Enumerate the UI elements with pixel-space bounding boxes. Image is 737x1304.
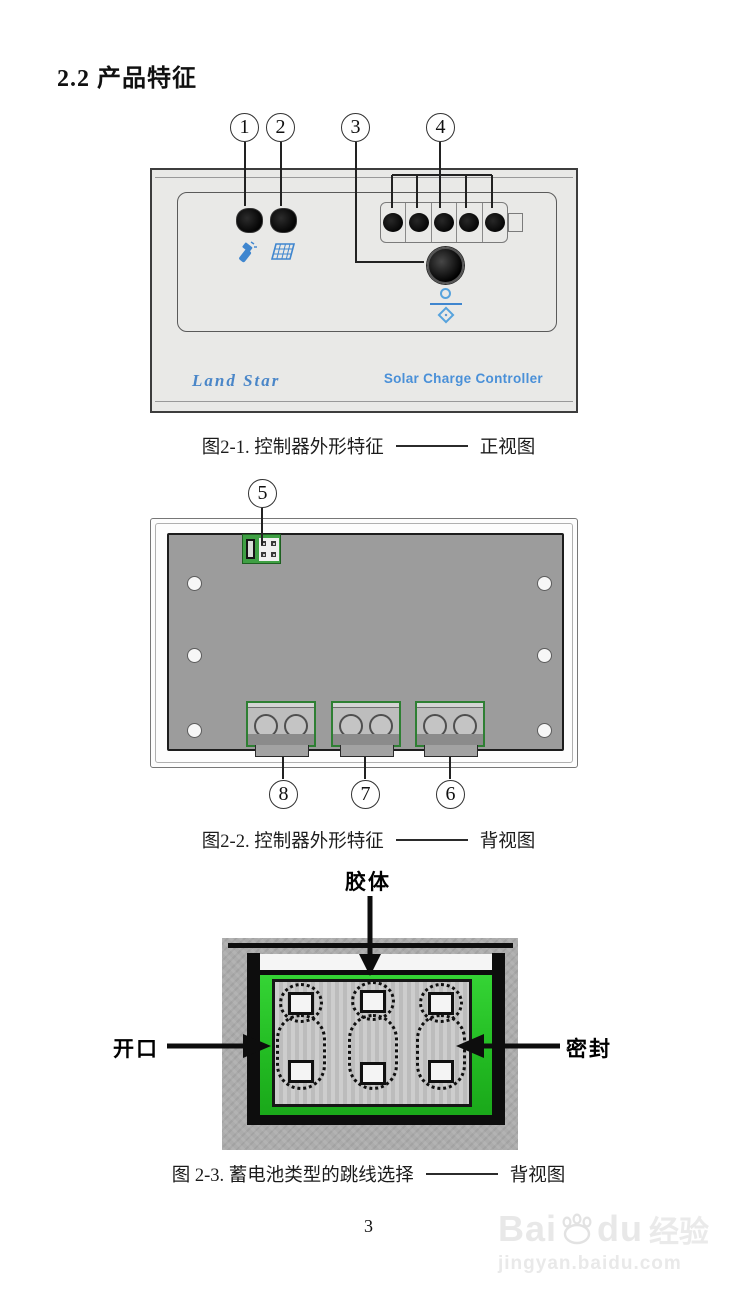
case-bevel-bottom	[155, 401, 573, 402]
led-cell	[457, 203, 482, 242]
terminal-load	[331, 701, 401, 747]
pcb-green-area	[260, 975, 492, 1115]
baidu-watermark: Bai du 经验 jingyan.baidu.com	[498, 1207, 728, 1275]
caption-dash	[426, 1173, 498, 1175]
charge-led	[270, 208, 297, 233]
watermark-du: du	[597, 1208, 643, 1250]
label-gel: 胶体	[345, 866, 391, 896]
led-cell	[483, 203, 507, 242]
status-led	[434, 213, 454, 232]
lamp-indicator-icon	[235, 240, 259, 264]
callout-6: 6	[436, 780, 465, 809]
jumper-pins	[259, 538, 279, 561]
led-cell	[432, 203, 457, 242]
back-panel	[167, 533, 564, 751]
brand-logo: Land Star	[192, 371, 280, 391]
watermark-cn: 经验	[649, 1207, 709, 1251]
caption-text: 图2-1. 控制器外形特征	[202, 433, 384, 459]
led-cell	[381, 203, 406, 242]
setting-button[interactable]	[427, 247, 464, 284]
product-name: Solar Charge Controller	[384, 371, 543, 386]
screw-hole	[537, 723, 552, 738]
figure1-caption: 图2-1. 控制器外形特征 正视图	[0, 433, 737, 459]
manual-page: 2.2 产品特征	[0, 0, 737, 1304]
battery-type-icon	[429, 288, 463, 328]
status-led	[409, 213, 429, 232]
watermark-bai: Bai	[498, 1208, 557, 1250]
case-bevel-top	[155, 177, 573, 178]
callout-2: 2	[266, 113, 295, 142]
jumper-dotted-oval	[276, 1014, 326, 1090]
label-sealed: 密封	[566, 1033, 612, 1063]
caption-text: 图 2-3. 蓄电池类型的跳线选择	[172, 1161, 414, 1187]
label-open: 开口	[113, 1033, 159, 1063]
status-led	[459, 213, 479, 232]
callout-7: 7	[351, 780, 380, 809]
screw-hole	[537, 576, 552, 591]
callout-1: 1	[230, 113, 259, 142]
battery-jumper-block[interactable]	[242, 534, 281, 564]
status-led	[383, 213, 403, 232]
solar-panel-icon	[270, 242, 296, 262]
screw-hole	[187, 648, 202, 663]
status-led-strip	[380, 202, 508, 243]
section-title: 2.2 产品特征	[57, 58, 197, 93]
led-cell	[406, 203, 431, 242]
watermark-url: jingyan.baidu.com	[498, 1253, 728, 1275]
caption-dash	[396, 839, 468, 841]
jumper-dotted-oval	[416, 1014, 466, 1090]
controller-front-view: Land Star Solar Charge Controller	[150, 168, 578, 413]
callout-3: 3	[341, 113, 370, 142]
jumper-field	[272, 979, 472, 1107]
callout-8: 8	[269, 780, 298, 809]
screw-hole	[187, 576, 202, 591]
terminal-solar	[415, 701, 485, 747]
strip-bracket	[508, 213, 523, 232]
callout-4: 4	[426, 113, 455, 142]
load-led	[236, 208, 263, 233]
callout-5: 5	[248, 479, 277, 508]
paw-icon	[559, 1213, 595, 1245]
caption-dash	[396, 445, 468, 447]
jumper-photo	[222, 938, 518, 1150]
caption-text: 背视图	[480, 827, 536, 853]
screw-hole	[537, 648, 552, 663]
terminal-battery	[246, 701, 316, 747]
status-led	[485, 213, 505, 232]
jumper-slot	[246, 539, 255, 559]
figure2-caption: 图2-2. 控制器外形特征 背视图	[0, 827, 737, 853]
screw-hole	[187, 723, 202, 738]
caption-text: 背视图	[510, 1161, 566, 1187]
caption-text: 图2-2. 控制器外形特征	[202, 827, 384, 853]
controller-back-view	[150, 518, 578, 768]
jumper-dotted-oval	[348, 1014, 398, 1090]
figure3-caption: 图 2-3. 蓄电池类型的跳线选择 背视图	[0, 1161, 737, 1187]
caption-text: 正视图	[480, 433, 536, 459]
